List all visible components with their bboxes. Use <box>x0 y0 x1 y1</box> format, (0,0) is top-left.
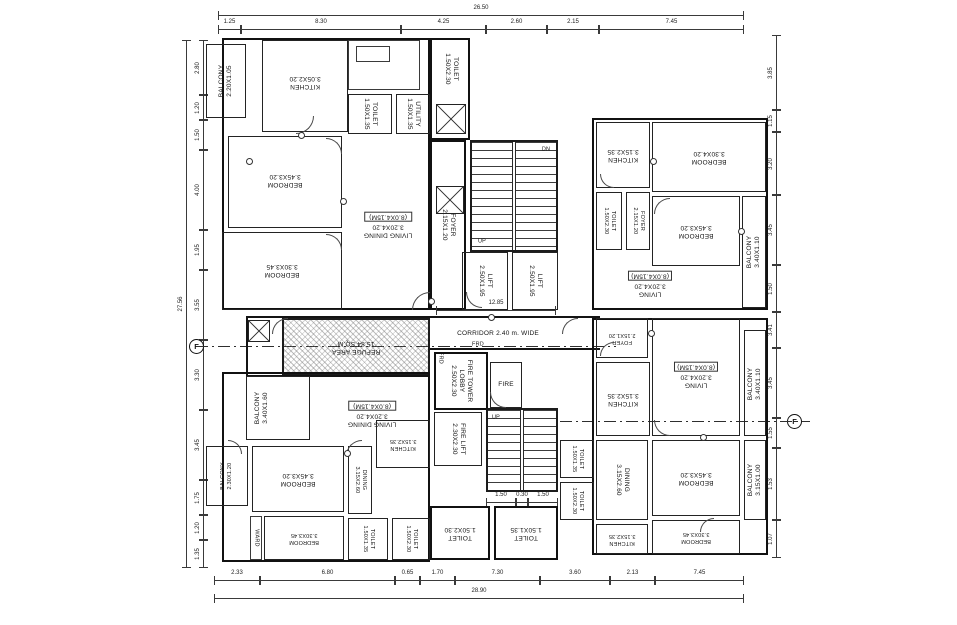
dim-label: 7.45 <box>664 19 680 25</box>
stair-up-label: UP <box>478 239 486 246</box>
dim-label: 26.50 <box>471 5 490 11</box>
room-label: BALCONY3.15X1.00 <box>747 464 763 496</box>
refuge-label: REFUGE AREA15.84 SQ.M <box>332 339 380 355</box>
room-label: DINING3.15X2.60 <box>614 464 630 495</box>
dim-label: 1.35 <box>195 546 201 562</box>
door-arc <box>562 318 578 334</box>
dim-label: 2.60 <box>509 19 525 25</box>
room-label: BEDROOM3.30X3.45 <box>265 262 300 278</box>
stair-dn-label: DN <box>542 147 550 154</box>
right-dim-segments: 3.85 1.15 3.20 3.45 1.50 3.41 3.45 1.55 … <box>772 35 781 558</box>
room-label: TOILET1.50X1.35 <box>361 526 375 553</box>
room-label: BALCONY2.30X1.20 <box>220 462 234 490</box>
room-label: DINING3.15X2.60 <box>353 467 367 494</box>
dim-label: 27.56 <box>178 294 184 313</box>
dim-label: 8.30 <box>313 19 329 25</box>
room-label: BEDROOM3.45X3.20 <box>679 223 714 239</box>
room-label: BEDROOM3.30X3.45 <box>289 531 319 545</box>
dim-label: 4.00 <box>195 182 201 198</box>
dim-label: 4.25 <box>436 19 452 25</box>
kitchen-sink <box>356 46 390 62</box>
dim-label: 3.45 <box>768 222 774 238</box>
bottom-dim-total: 28.90 <box>214 594 744 603</box>
frd-label: FRD <box>437 352 444 364</box>
door-tag <box>340 198 347 205</box>
room-label: KITCHEN3.15X2.35 <box>607 391 638 407</box>
room-label: BEDROOM3.45X3.20 <box>268 172 303 188</box>
room-label: BALCONY3.40X1.10 <box>747 368 763 400</box>
left-dim-total: 27.56 <box>182 40 191 568</box>
dim-label: 2.80 <box>195 60 201 76</box>
stair-rail <box>520 410 524 490</box>
dim-label: 28.90 <box>469 588 488 594</box>
dim-label: 3.85 <box>768 65 774 81</box>
dim-label: 2.13 <box>625 570 641 576</box>
room-label: FOYER2.15X1.20 <box>631 208 645 235</box>
duct-entry-left <box>248 320 270 342</box>
room-label: KITCHEN3.15X2.35 <box>607 147 638 163</box>
dim-label: 1.53 <box>768 476 774 492</box>
duct-core <box>436 186 464 214</box>
dim-label: 1.50 <box>493 492 509 498</box>
dim-label: 1.50 <box>535 492 551 498</box>
room-label: TOILET1.50X2.30 <box>444 525 475 541</box>
door-arc <box>272 318 288 334</box>
room-label: LIVING DINING3.20X4.20(8.0X4.15M) <box>364 211 412 238</box>
staircase-upper <box>470 140 558 252</box>
room-label: TOILET1.50X2.30 <box>602 208 616 235</box>
floor-plan-sheet: 26.50 1.25 8.30 4.25 2.60 2.15 7.45 2.33… <box>0 0 957 625</box>
room-label: BEDROOM3.30X4.20 <box>692 149 727 165</box>
corridor-dim: 12.85 <box>436 306 556 315</box>
room-label: BALCONY3.40X1.60 <box>254 392 270 424</box>
dim-label: 1.15 <box>768 113 774 129</box>
door-tag <box>298 132 305 139</box>
door-tag <box>650 158 657 165</box>
dim-label: 3.45 <box>768 375 774 391</box>
lift-label: LIFT2.50X1.95 <box>527 265 543 296</box>
dim-label: 1.55 <box>768 425 774 441</box>
dim-label: 3.45 <box>195 437 201 453</box>
dim-label: 6.80 <box>320 570 336 576</box>
dim-label: 3.30 <box>195 367 201 383</box>
room-label: TOILET1.50X1.35 <box>570 446 584 473</box>
corridor-wall-bottom <box>430 348 600 350</box>
door-tag <box>488 314 495 321</box>
dim-label: 3.55 <box>195 297 201 313</box>
bottom-dim-segments: 2.33 6.80 0.65 1.70 7.30 3.60 2.13 7.45 <box>214 576 744 585</box>
room-label: LIVING3.20X4.20(8.0X4.15M) <box>628 270 672 297</box>
room-label: TOILET1.50X1.35 <box>510 525 541 541</box>
door-tag <box>428 298 435 305</box>
dim-label: 1.75 <box>195 490 201 506</box>
dim-label: 2.15 <box>565 19 581 25</box>
dim-label: 1.20 <box>195 100 201 116</box>
dim-label: 3.41 <box>768 322 774 338</box>
room-label: BALCONY3.40X1.10 <box>746 236 762 268</box>
room-label: WARD <box>253 529 260 546</box>
dim-label: 1.07 <box>768 531 774 547</box>
room-label: KITCHEN3.05X2.20 <box>289 74 320 90</box>
fire-lobby-label: FIRE TOWER LOBBY2.50X2.30 <box>449 357 473 405</box>
room-label: LIVING3.20X4.20(8.0X4.15M) <box>674 361 718 388</box>
door-tag <box>246 158 253 165</box>
dim-label: 12.85 <box>486 300 505 306</box>
refuge-wall-left <box>246 316 248 377</box>
room-label: BEDROOM3.30X3.45 <box>681 530 711 544</box>
room-label: KITCHEN3.15X2.35 <box>609 532 636 546</box>
duct-annex <box>436 104 466 134</box>
door-tag <box>344 450 351 457</box>
stair-up-label: UP <box>492 415 500 422</box>
dim-label: 7.45 <box>692 570 708 576</box>
door-tag <box>700 434 707 441</box>
room-label: KITCHEN3.15X2.35 <box>390 437 417 451</box>
fire-room-label: FIRE <box>498 381 514 389</box>
room-label: TOILET1.50X2.30 <box>404 526 418 553</box>
room-label: TOILET1.50X2.30 <box>570 488 584 515</box>
door-tag <box>738 228 745 235</box>
dim-label: 1.20 <box>195 520 201 536</box>
dim-label: 7.30 <box>490 570 506 576</box>
room-label: UTILITY1.50X1.35 <box>405 98 421 129</box>
top-dim-segments: 1.25 8.30 4.25 2.60 2.15 7.45 <box>218 25 744 34</box>
room-label: BEDROOM3.45X3.20 <box>281 471 316 487</box>
dim-label: 1.95 <box>195 242 201 258</box>
dim-label: 1.50 <box>768 281 774 297</box>
stair-rail <box>512 142 516 250</box>
door-tag <box>648 330 655 337</box>
room-label: BALCONY2.20X1.05 <box>218 65 234 97</box>
dim-label: 0.65 <box>400 570 416 576</box>
dim-label: 1.25 <box>222 19 238 25</box>
dim-label: 3.60 <box>567 570 583 576</box>
dim-label: 2.33 <box>229 570 245 576</box>
dim-label: 3.20 <box>768 156 774 172</box>
dim-label: 1.70 <box>430 570 446 576</box>
room-label: TOILET1.50X2.30 <box>443 53 459 84</box>
fire-lift-label: FIRE LIFT2.30X2.30 <box>450 423 466 455</box>
dim-label: 1.50 <box>195 127 201 143</box>
room-label: TOILET1.50X1.35 <box>362 98 378 129</box>
corridor-label: CORRIDOR 2.40 m. WIDE <box>457 330 539 338</box>
room-label: BEDROOM3.45X3.20 <box>679 470 714 486</box>
frd-label: FRD <box>472 342 484 349</box>
